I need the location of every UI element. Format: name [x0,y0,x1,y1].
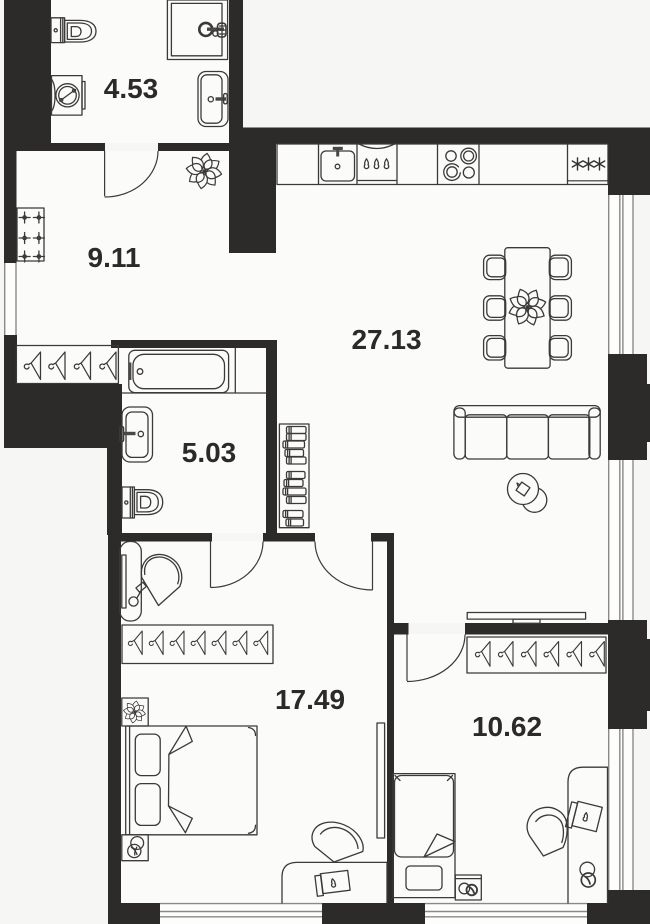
svg-text:10.62: 10.62 [472,711,542,742]
svg-text:9.11: 9.11 [88,242,141,273]
svg-text:5.03: 5.03 [182,437,237,468]
svg-text:4.53: 4.53 [104,73,159,104]
svg-text:17.49: 17.49 [275,684,345,715]
svg-text:27.13: 27.13 [351,324,421,355]
